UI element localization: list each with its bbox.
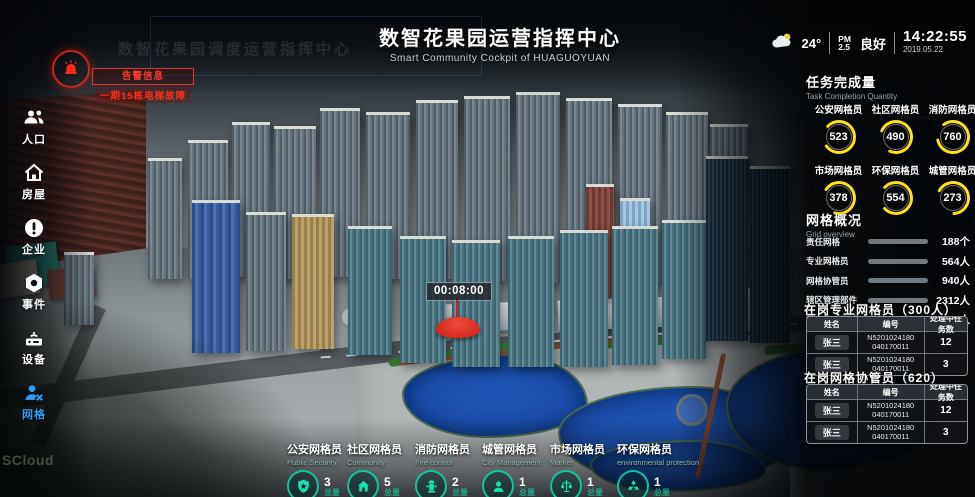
building xyxy=(64,252,94,325)
map-pin-dome xyxy=(436,317,480,338)
gauge-community: 社区网格员 490 xyxy=(867,102,924,156)
sidebar-item-population[interactable]: 人口 xyxy=(0,106,68,147)
sidebar-item-enterprise[interactable]: 企业 xyxy=(0,216,68,257)
sidebar-item-devices[interactable]: 设备 xyxy=(0,326,68,367)
sidebar-item-grid[interactable]: 网格 xyxy=(0,381,68,422)
stat-row: 责任网格 188个 xyxy=(806,234,970,249)
event-icon xyxy=(22,271,46,295)
professional-gridders-table: 姓名 编号 处理中任务数 张三 N5201024180040170011 12 … xyxy=(806,316,968,376)
gauge-city-mgmt: 城管网格员 273 xyxy=(924,163,975,217)
table-row[interactable]: 张三 N5201024180040170011 12 xyxy=(807,331,967,353)
device-icon xyxy=(22,326,46,350)
table-row[interactable]: 张三 N5201024180040170011 3 xyxy=(807,421,967,443)
header: 数智花果园运营指挥中心 Smart Community Cockpit of H… xyxy=(240,22,760,64)
stat-row: 网格协管员 940人 xyxy=(806,273,970,288)
recycle-icon xyxy=(617,470,649,497)
page-subtitle: Smart Community Cockpit of HUAGUOYUAN xyxy=(240,53,760,64)
building xyxy=(348,226,392,355)
shield-star-icon xyxy=(287,470,319,497)
enterprise-icon xyxy=(22,216,46,240)
bottom-stat-fire: 消防网格员 Fire control 2总量 xyxy=(415,441,485,497)
divider xyxy=(894,32,895,54)
stat-row: 专业网格员 564人 xyxy=(806,254,970,269)
home-icon xyxy=(347,470,379,497)
building xyxy=(612,226,658,365)
pm-indicator: PM 2.5 xyxy=(838,35,851,51)
timer-badge: 00:08:00 xyxy=(426,282,492,301)
section-subtitle: Task Completion Quantity xyxy=(806,92,897,101)
temperature: 24° xyxy=(802,36,822,51)
gauge-fire: 消防网格员 760 xyxy=(924,102,975,156)
building xyxy=(192,200,240,353)
building xyxy=(706,156,748,341)
divider xyxy=(829,32,830,54)
bottom-stat-city-mgmt: 城管网格员 City Management 1总量 xyxy=(482,441,552,497)
gauge-market: 市场网格员 378 xyxy=(810,163,867,217)
ring xyxy=(676,394,708,426)
sidebar: 人口 房屋 企业 事件 设备 网格 xyxy=(0,106,68,422)
clock: 14:22:55 2019.05.22 xyxy=(903,30,967,56)
building xyxy=(148,158,182,279)
building xyxy=(560,230,608,367)
task-completion-gauges: 公安网格员 523 社区网格员 490 消防网格员 760 市场网格员 xyxy=(810,102,975,217)
task-completion-header: 任务完成量 Task Completion Quantity xyxy=(806,72,897,101)
weather-icon xyxy=(770,31,794,56)
gauge-ring: 490 xyxy=(877,118,915,156)
sidebar-item-housing[interactable]: 房屋 xyxy=(0,161,68,202)
progress-bar xyxy=(868,259,928,264)
watermark: SCloud xyxy=(2,452,54,468)
building xyxy=(750,166,790,343)
gauge-public-security: 公安网格员 523 xyxy=(810,102,867,156)
sidebar-item-events[interactable]: 事件 xyxy=(0,271,68,312)
alarm-message[interactable]: 一期15栋电梯故障 xyxy=(95,87,191,103)
building xyxy=(292,214,334,349)
air-quality: 良好 xyxy=(860,34,886,53)
officer-icon xyxy=(482,470,514,497)
alarm-title[interactable]: 告警信息 xyxy=(92,68,194,85)
section-title: 任务完成量 xyxy=(806,72,897,91)
grid-icon xyxy=(22,381,46,405)
page-title: 数智花果园运营指挥中心 xyxy=(240,22,760,51)
smart-community-cockpit: 数智花果园调度运营指挥中心 数智花果园运营指挥中心 Smart Communit… xyxy=(0,0,975,497)
bottom-stat-environment: 环保网格员 environmental protection 1总量 xyxy=(617,441,687,497)
gauge-ring: 554 xyxy=(877,179,915,217)
gauge-environment: 环保网格员 554 xyxy=(867,163,924,217)
bottom-stat-market: 市场网格员 Market 1总量 xyxy=(550,441,620,497)
date: 2019.05.22 xyxy=(903,43,967,56)
table-header: 姓名 编号 处理中任务数 xyxy=(807,385,967,399)
assistant-gridders-table: 姓名 编号 处理中任务数 张三 N5201024180040170011 12 … xyxy=(806,384,968,444)
hydrant-icon xyxy=(415,470,447,497)
gauge-ring: 523 xyxy=(820,118,858,156)
status-bar: 24° PM 2.5 良好 14:22:55 2019.05.22 xyxy=(770,30,967,56)
scales-icon xyxy=(550,470,582,497)
progress-bar xyxy=(868,278,928,283)
siren-icon[interactable] xyxy=(52,50,90,88)
progress-bar xyxy=(868,239,928,244)
time: 14:22:55 xyxy=(903,30,967,43)
gauge-ring: 760 xyxy=(934,118,972,156)
building xyxy=(452,240,500,367)
section-title: 网格概况 xyxy=(806,210,862,229)
table-row[interactable]: 张三 N5201024180040170011 12 xyxy=(807,399,967,421)
gauge-ring: 273 xyxy=(934,179,972,217)
people-icon xyxy=(22,106,46,130)
house-icon xyxy=(22,161,46,185)
building xyxy=(246,212,286,351)
bottom-stat-community: 社区网格员 Community 5总量 xyxy=(347,441,417,497)
table-header: 姓名 编号 处理中任务数 xyxy=(807,317,967,331)
building xyxy=(508,236,554,367)
building xyxy=(662,220,706,359)
